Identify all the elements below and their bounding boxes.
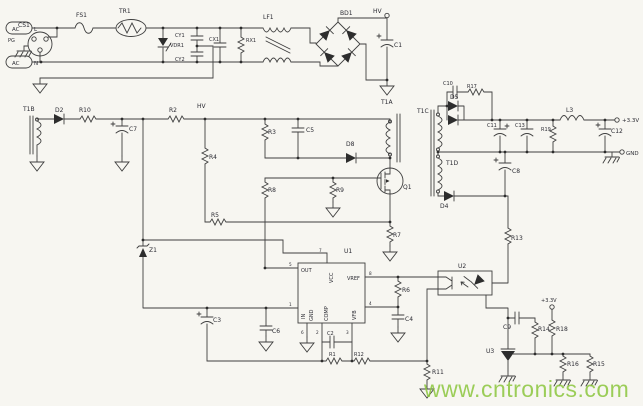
c4-label: C4 xyxy=(405,316,413,323)
d5-dual-diode xyxy=(448,101,464,125)
v33-output-label: +3.3V xyxy=(622,118,639,124)
l3-label: L3 xyxy=(566,107,573,114)
v33-aux-label: +3.3V xyxy=(541,298,557,304)
z1-label: Z1 xyxy=(149,247,157,254)
schematic-canvas: AC L AC N CS1 PG FS1 TR1 VDR1 CY1 CY2 CX… xyxy=(0,0,643,406)
u2-optocoupler xyxy=(427,271,508,361)
r14-label: R14 xyxy=(538,326,550,333)
r14-resistor xyxy=(532,318,538,354)
c2-capacitor xyxy=(322,336,352,348)
c8-label: C8 xyxy=(512,168,520,175)
c9-label: C9 xyxy=(503,324,511,331)
r15-label: R15 xyxy=(593,361,605,368)
u1-pin8-number: 8 xyxy=(369,271,372,276)
r19-label: R19 xyxy=(541,127,551,133)
cy2-label: CY2 xyxy=(175,57,185,63)
rx1-label: RX1 xyxy=(246,38,256,44)
t1d-label: T1D xyxy=(445,160,458,167)
power-supply-schematic: AC L AC N CS1 PG FS1 TR1 VDR1 CY1 CY2 CX… xyxy=(0,0,643,406)
c5-label: C5 xyxy=(306,127,314,134)
v33-terminal xyxy=(615,118,619,122)
r12-label: R12 xyxy=(354,352,364,358)
r16-label: R16 xyxy=(567,361,579,368)
u1-pin-gnd-label: GND xyxy=(309,309,315,321)
r6-label: R6 xyxy=(402,287,410,294)
r5-resistor xyxy=(205,219,390,225)
u1-pin3-number: 3 xyxy=(346,330,349,335)
tr1-label: TR1 xyxy=(118,8,131,15)
t1-core xyxy=(431,110,434,196)
fs1-label: FS1 xyxy=(76,12,87,19)
t1a-winding xyxy=(386,114,400,162)
u1-pin5-number: 5 xyxy=(289,262,292,267)
lf1-label: LF1 xyxy=(263,14,274,21)
d8-label: D8 xyxy=(346,141,355,148)
r13-resistor xyxy=(492,196,511,283)
r12-resistor xyxy=(354,358,370,364)
u1-pin-in-label: IN xyxy=(301,314,307,319)
r7-sense-resistor xyxy=(383,194,397,261)
r9-resistor xyxy=(326,178,340,217)
r10-label: R10 xyxy=(79,107,91,114)
bd1-bridge-rectifier xyxy=(316,22,360,66)
gnd-terminal xyxy=(620,150,624,154)
r10-resistor xyxy=(80,116,96,122)
secondary-section xyxy=(431,86,624,201)
aux-vcc-section xyxy=(30,114,390,308)
junction-dots xyxy=(40,27,607,363)
hv-mid-label: HV xyxy=(197,103,207,110)
c4-capacitor xyxy=(391,307,405,342)
r1-label: R1 xyxy=(329,352,336,358)
q1-label: Q1 xyxy=(403,184,412,191)
r2-label: R2 xyxy=(169,107,177,114)
ac-n-box-label: AC xyxy=(12,61,20,67)
r4-label: R4 xyxy=(209,154,217,161)
u1-pin-out-label: OUT xyxy=(301,268,313,274)
c12-label: C12 xyxy=(611,128,623,135)
c7-capacitor xyxy=(111,119,129,171)
u1-ground-pin xyxy=(300,323,314,352)
r13-label: R13 xyxy=(511,235,523,242)
r3-resistor xyxy=(262,119,268,158)
bottom-rail xyxy=(207,358,427,364)
c3-label: C3 xyxy=(213,317,221,324)
c12-capacitor xyxy=(596,120,611,152)
c8-capacitor xyxy=(494,152,511,196)
c6-capacitor xyxy=(259,308,273,351)
r5-label: R5 xyxy=(211,212,219,219)
ac-n-pin-label: N xyxy=(34,61,38,67)
cy1-label: CY1 xyxy=(175,33,185,39)
r7-label: R7 xyxy=(393,232,401,239)
cs1-connector xyxy=(15,28,57,62)
u1-pin1-number: 1 xyxy=(289,302,292,307)
u1-label: U1 xyxy=(344,248,352,255)
d8-diode xyxy=(346,153,356,163)
fs1-fuse xyxy=(75,23,93,34)
c10-label: C10 xyxy=(443,81,453,87)
rx1-resistor xyxy=(238,28,244,62)
r4-resistor xyxy=(202,119,208,222)
c2-label: C2 xyxy=(327,331,334,337)
r11-label: R11 xyxy=(432,369,444,376)
c10-r17-snubber xyxy=(447,86,492,120)
r17-label: R17 xyxy=(467,84,477,90)
pg-label: PG xyxy=(8,38,15,44)
r2-resistor xyxy=(168,116,184,122)
r9-label: R9 xyxy=(336,187,344,194)
d4-label: D4 xyxy=(440,203,449,210)
u1-pin-comp-label: COMP xyxy=(324,306,330,321)
c1-label: C1 xyxy=(394,42,402,49)
t1c-winding xyxy=(437,106,448,152)
c7-label: C7 xyxy=(129,126,137,133)
cx1-capacitor xyxy=(214,28,226,62)
t1a-label: T1A xyxy=(380,99,393,106)
c5-capacitor xyxy=(292,119,304,158)
vdr1-label: VDR1 xyxy=(170,43,184,49)
u1-pin4-number: 4 xyxy=(369,301,372,306)
cx1-label: CX1 xyxy=(209,37,219,43)
d4-diode xyxy=(444,191,454,201)
l3-inductor xyxy=(560,116,584,121)
cs1-label: CS1 xyxy=(18,22,30,29)
u1-pin-vfb-label: VFB xyxy=(352,310,358,320)
watermark: www.cntronics.com xyxy=(423,376,629,402)
c11-label: C11 xyxy=(487,123,497,129)
r18-resistor xyxy=(549,305,555,354)
c3-capacitor xyxy=(197,308,213,361)
u1-pin-vcc-label: VCC xyxy=(329,272,335,283)
ac-line-input xyxy=(6,13,394,95)
gnd-output-label: GND xyxy=(626,151,639,157)
chassis-ground xyxy=(603,152,620,163)
u1-pin6-number: 6 xyxy=(301,330,304,335)
t1b-winding xyxy=(30,116,54,171)
u1-controller xyxy=(197,263,438,364)
r8-label: R8 xyxy=(268,187,276,194)
tr1-thermistor xyxy=(116,20,146,37)
r6-resistor xyxy=(395,277,401,307)
u1-pin-vref-label: VREF xyxy=(347,276,360,282)
d2-label: D2 xyxy=(55,107,64,114)
u2-label: U2 xyxy=(458,263,466,270)
c9-capacitor xyxy=(508,312,535,324)
t1d-winding xyxy=(437,152,445,196)
cy-capacitors xyxy=(33,28,213,93)
hv-top-label: HV xyxy=(373,8,383,15)
t1b-label: T1B xyxy=(22,106,35,113)
t1c-label: T1C xyxy=(416,108,429,115)
u1-pin2-number: 2 xyxy=(316,330,319,335)
r1-resistor xyxy=(326,358,342,364)
u3-label: U3 xyxy=(486,348,494,355)
bd1-label: BD1 xyxy=(340,10,353,17)
d2-diode xyxy=(54,114,64,124)
r3-label: R3 xyxy=(268,129,276,136)
u1-pin7-number: 7 xyxy=(319,248,322,253)
c6-label: C6 xyxy=(272,328,280,335)
c13-label: C13 xyxy=(515,123,525,129)
d5-label: D5 xyxy=(450,94,459,101)
r18-label: R18 xyxy=(556,326,568,333)
r19-resistor xyxy=(550,120,556,152)
